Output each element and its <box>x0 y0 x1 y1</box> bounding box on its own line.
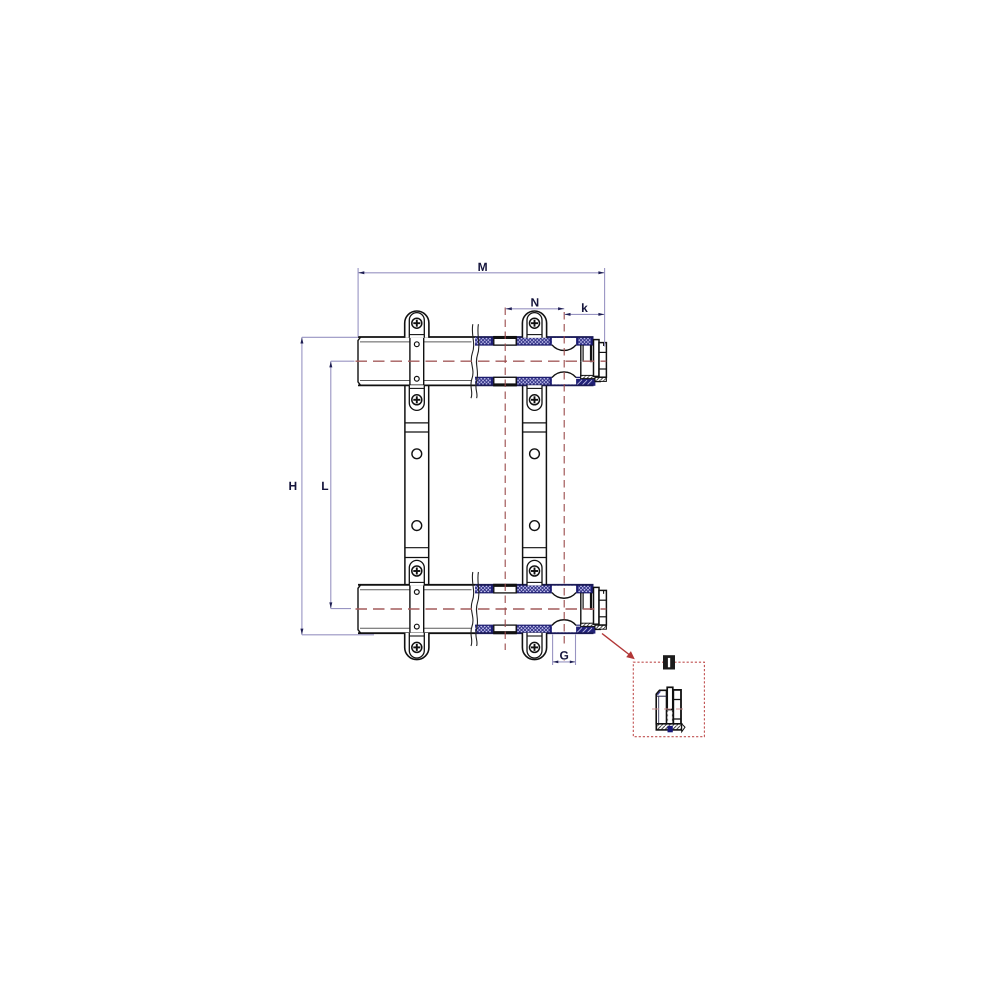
svg-text:G: G <box>560 649 569 663</box>
svg-text:N: N <box>530 295 539 309</box>
svg-text:k: k <box>581 301 588 315</box>
svg-text:H: H <box>289 479 298 493</box>
svg-text:M: M <box>478 260 488 274</box>
svg-text:L: L <box>321 479 328 493</box>
